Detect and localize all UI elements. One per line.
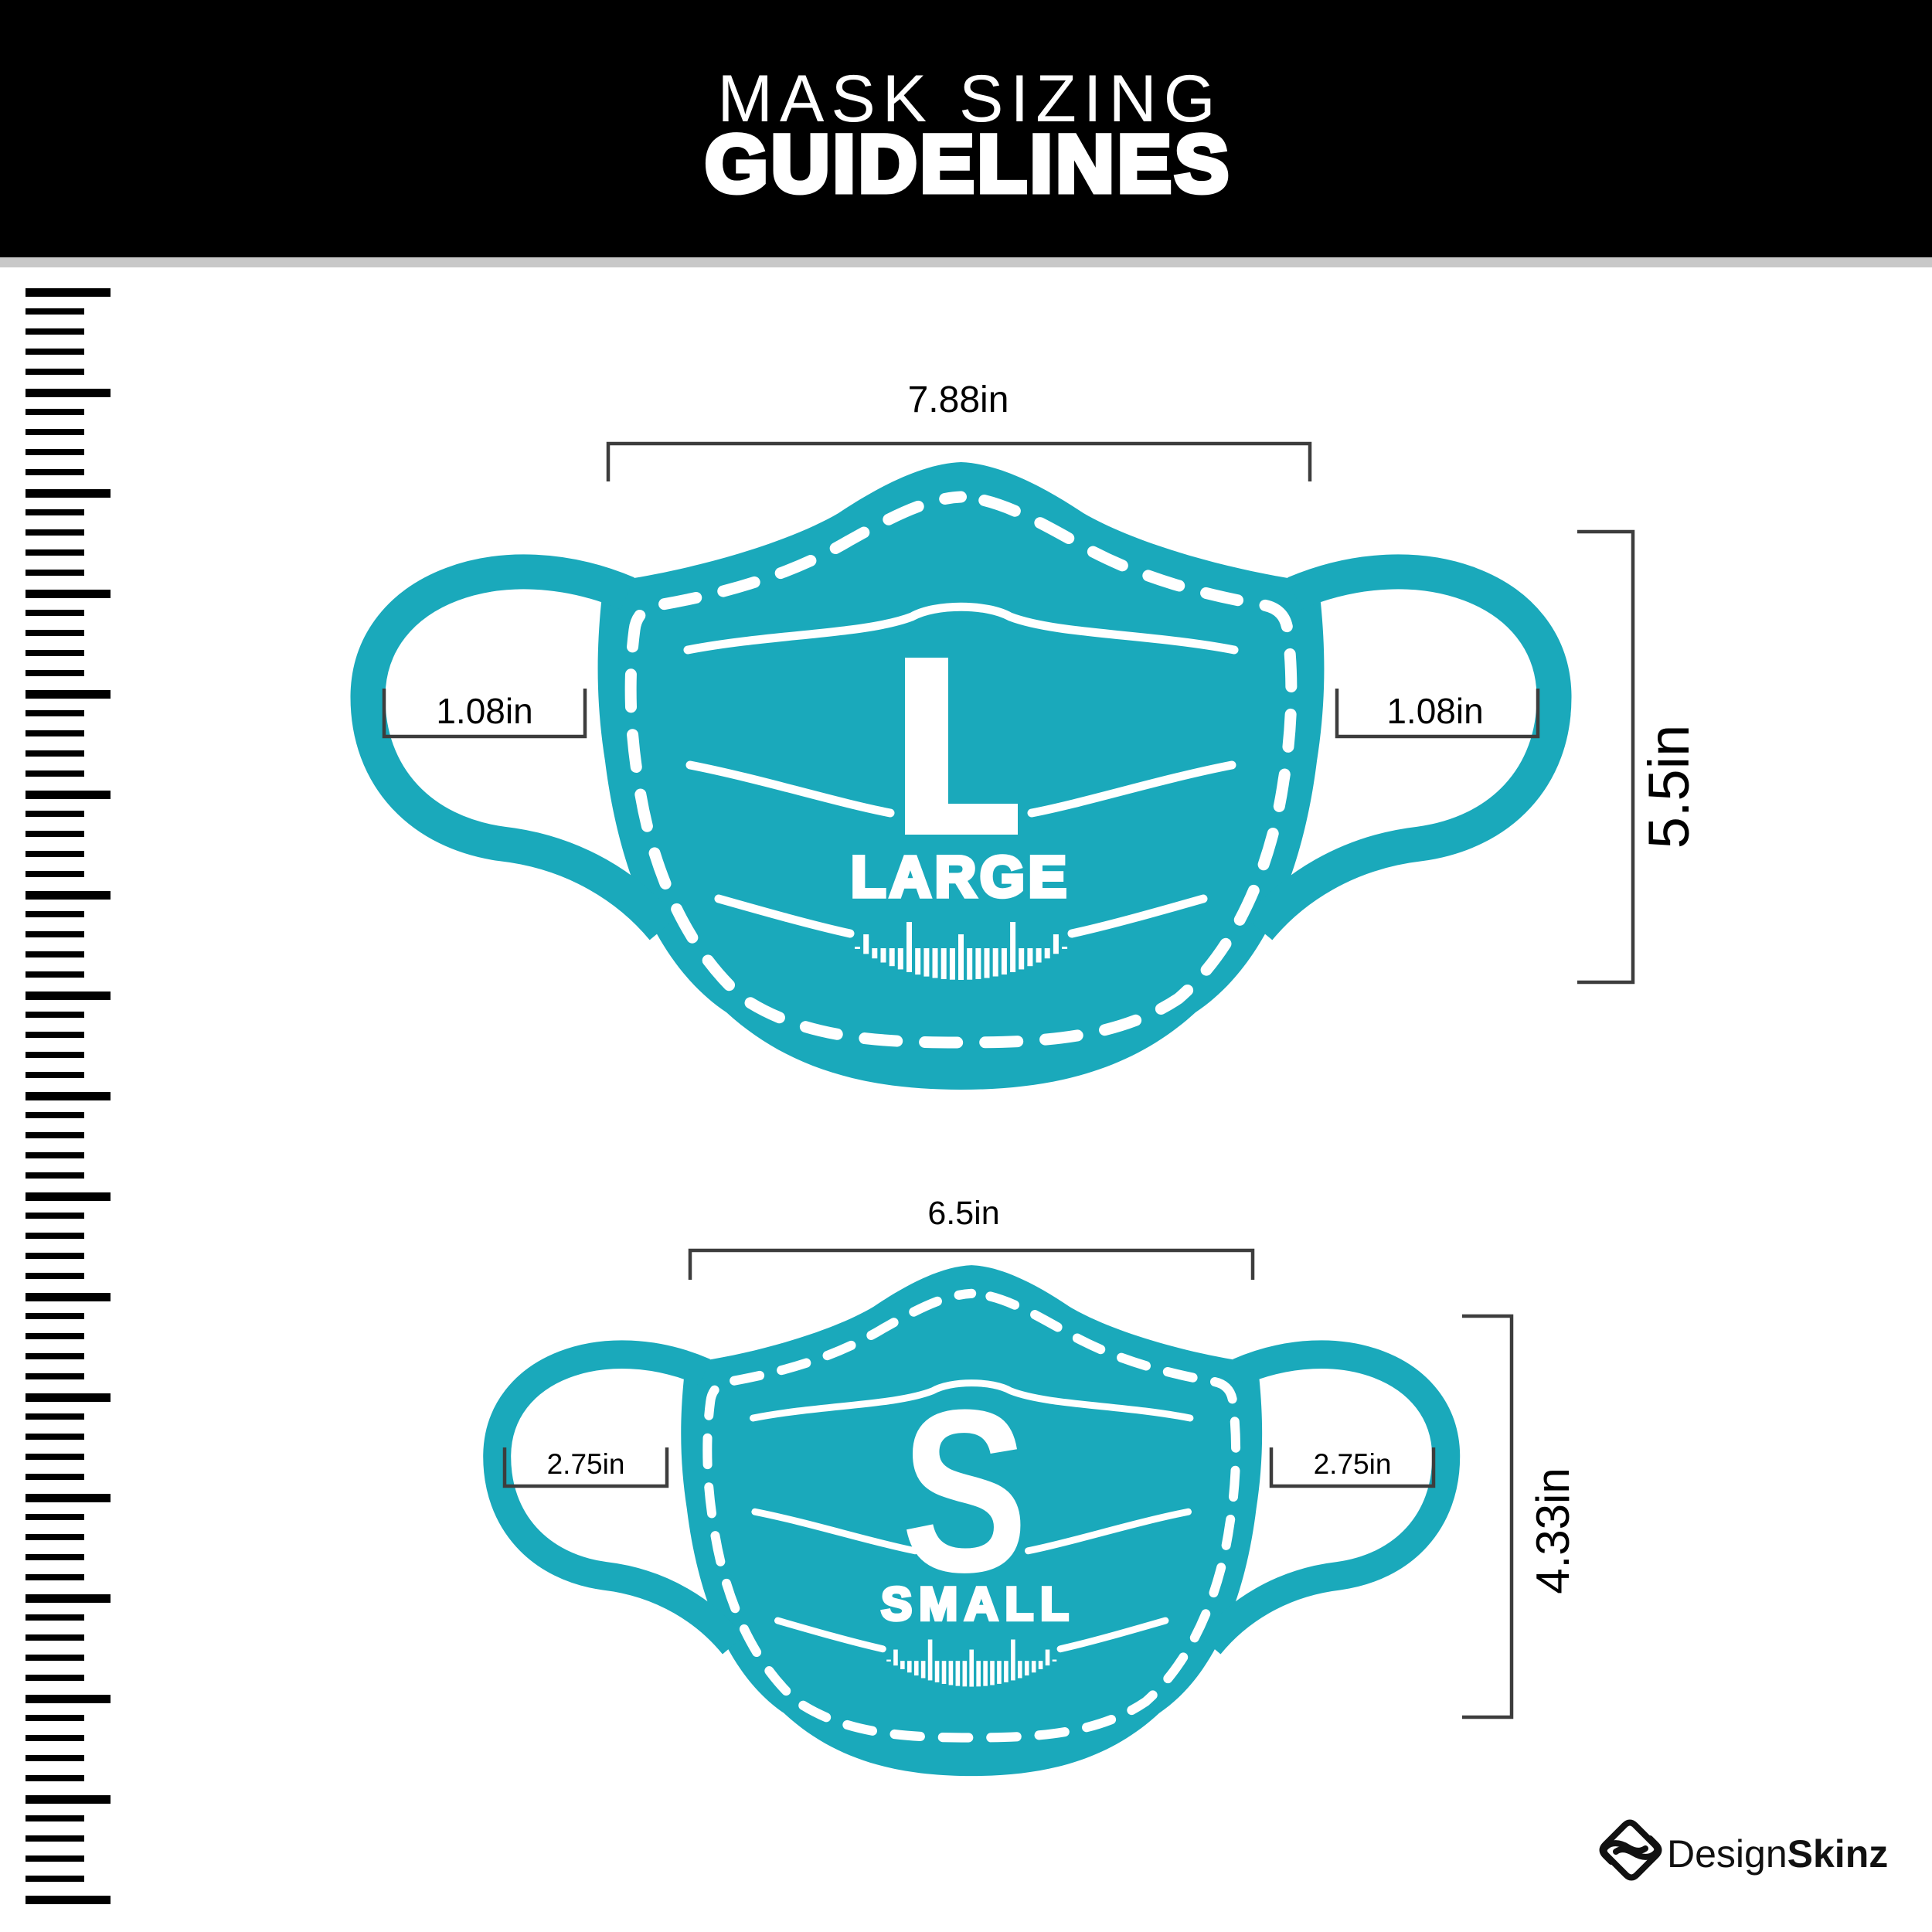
svg-text:4.33in: 4.33in xyxy=(1527,1468,1579,1594)
svg-text:DesignSkinz: DesignSkinz xyxy=(1667,1832,1888,1876)
svg-text:2.75in: 2.75in xyxy=(1314,1448,1392,1480)
svg-text:1.08in: 1.08in xyxy=(436,691,532,731)
svg-text:LARGE: LARGE xyxy=(851,845,1070,909)
svg-text:GUIDELINES: GUIDELINES xyxy=(705,119,1232,209)
svg-text:SMALL: SMALL xyxy=(881,1578,1076,1630)
svg-text:5.5in: 5.5in xyxy=(1637,725,1701,849)
svg-text:6.5in: 6.5in xyxy=(927,1195,999,1232)
svg-text:2.75in: 2.75in xyxy=(547,1448,625,1480)
svg-text:1.08in: 1.08in xyxy=(1386,691,1483,731)
svg-text:7.88in: 7.88in xyxy=(908,379,1009,420)
